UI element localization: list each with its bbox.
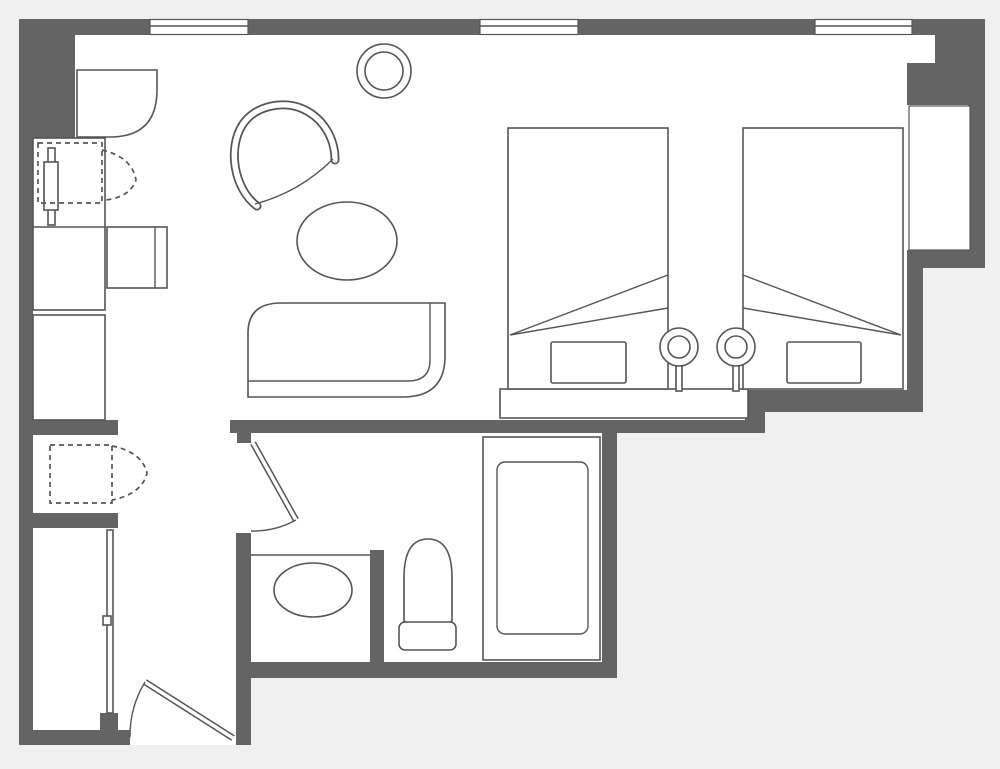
wall-stub-closet-1 bbox=[19, 420, 118, 435]
wall-right-upper bbox=[907, 63, 985, 105]
sink-basin bbox=[274, 563, 352, 617]
wall-bottom-left bbox=[19, 730, 130, 745]
wall-left bbox=[19, 35, 33, 745]
toilet bbox=[399, 539, 456, 650]
round-side-table bbox=[357, 44, 411, 98]
window-1 bbox=[150, 20, 248, 35]
floor-plan bbox=[0, 0, 1000, 769]
oval-coffee-table bbox=[297, 202, 397, 280]
desk-with-chair bbox=[107, 227, 167, 288]
window-2 bbox=[480, 20, 578, 35]
bed-2-pillow bbox=[787, 342, 861, 383]
headboard-bench bbox=[500, 389, 748, 418]
wall-stub-closet-2 bbox=[19, 513, 118, 528]
bay-window bbox=[909, 106, 970, 250]
wall-top-right-block bbox=[935, 35, 985, 63]
floor-plan-canvas bbox=[0, 0, 1000, 769]
wall-stub-entry bbox=[100, 713, 118, 730]
wall-column-top-left bbox=[33, 35, 75, 138]
wall-bed-bottom-right bbox=[745, 390, 923, 412]
bed-1-pillow bbox=[551, 342, 626, 383]
window-3 bbox=[815, 20, 912, 35]
sofa bbox=[248, 303, 445, 397]
bathtub bbox=[483, 437, 600, 660]
wall-below-bay bbox=[907, 250, 985, 268]
wall-sink-partition bbox=[370, 550, 384, 662]
wall-bath-bottom bbox=[237, 662, 617, 678]
wall-corridor-right bbox=[236, 533, 251, 745]
wall-bath-right bbox=[602, 433, 617, 678]
wall-right-lower bbox=[907, 268, 923, 412]
wall-living-bottom bbox=[230, 420, 765, 433]
closet-middle bbox=[33, 315, 105, 420]
